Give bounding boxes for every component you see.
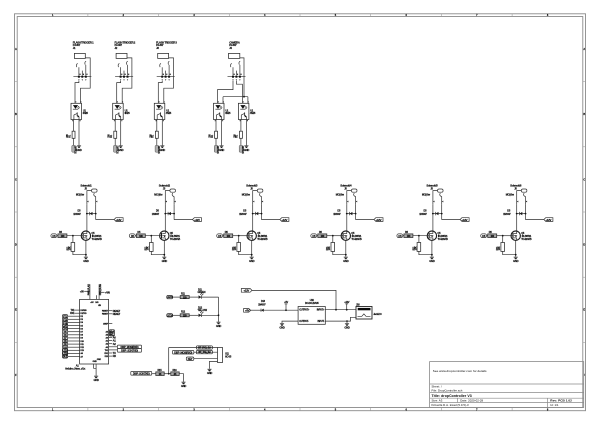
svg-text:INPUT+: INPUT+ [317, 308, 325, 312]
svg-text:1N4007: 1N4007 [258, 302, 266, 306]
svg-text:Rev: PCB 1.02: Rev: PCB 1.02 [550, 398, 572, 402]
svg-text:DISP_SCK(TXD): DISP_SCK(TXD) [121, 349, 138, 353]
svg-text:HC-05: HC-05 [225, 355, 232, 359]
svg-text:D0/RX0: D0/RX0 [80, 310, 87, 312]
svg-text:Date: 2020-02-28: Date: 2020-02-28 [460, 399, 483, 403]
svg-text:INPUT-: INPUT- [318, 319, 325, 323]
svg-text:Solenoid4: Solenoid4 [340, 183, 352, 187]
svg-text:BT_TX1_5.0: BT_TX1_5.0 [198, 350, 211, 354]
svg-text:Solenoid6: Solenoid6 [510, 183, 522, 187]
svg-text:Solenoid3: Solenoid3 [246, 183, 258, 187]
svg-text:+12V: +12V [243, 289, 249, 293]
svg-text:1K: 1K [159, 373, 162, 376]
svg-text:Arduino_Nano_v3.x: Arduino_Nano_v3.x [65, 366, 86, 370]
svg-text:GND: GND [93, 361, 98, 363]
svg-text:See www.dropcontroller.com for: See www.dropcontroller.com for details [433, 369, 487, 373]
svg-text:+5V: +5V [80, 289, 84, 293]
svg-text:RESET: RESET [102, 314, 109, 316]
svg-text:+12V: +12V [344, 300, 349, 304]
svg-text:Title: dropController V3: Title: dropController V3 [432, 394, 472, 398]
svg-text:Size: A3: Size: A3 [432, 399, 443, 403]
svg-text:GND: GND [97, 359, 102, 361]
svg-text:DISP_SCK(TXD): DISP_SCK(TXD) [133, 372, 150, 376]
svg-text:+5V: +5V [245, 309, 250, 313]
svg-text:File: DropController.sch: File: DropController.sch [432, 388, 463, 392]
svg-text:RESET: RESET [102, 311, 109, 313]
svg-text:YELLOW: YELLOW [198, 308, 208, 312]
svg-text:Solenoid5: Solenoid5 [426, 183, 438, 187]
svg-text:RESET: RESET [113, 312, 121, 316]
svg-text:Jack-DC: Jack-DC [373, 312, 382, 316]
svg-text:PWR_FLAG: PWR_FLAG [88, 284, 91, 295]
svg-text:PWR_FLAG: PWR_FLAG [99, 284, 102, 295]
svg-text:DC-DCLBA05: DC-DCLBA05 [305, 301, 319, 305]
svg-text:+5V: +5V [284, 300, 288, 304]
svg-text:DISP_MOSI(RXD): DISP_MOSI(RXD) [174, 350, 192, 354]
svg-text:BT_RX1_5.0: BT_RX1_5.0 [198, 346, 211, 350]
svg-text:LED2: LED2 [167, 313, 173, 317]
svg-text:Id: 1/1: Id: 1/1 [550, 403, 559, 407]
svg-text:Solenoid2: Solenoid2 [159, 183, 171, 187]
svg-text:+VIN: +VIN [105, 290, 110, 294]
svg-text:BUZ: BUZ [63, 355, 68, 359]
svg-text:GREEN: GREEN [198, 290, 206, 294]
svg-text:2K: 2K [174, 373, 177, 376]
svg-text:OUTPUT-: OUTPUT- [299, 319, 309, 323]
svg-text:KiCad E.D.A. kicad (5.0.5)-3: KiCad E.D.A. kicad (5.0.5)-3 [432, 403, 469, 407]
svg-text:KEY: KEY [188, 357, 193, 361]
svg-text:LED1: LED1 [167, 295, 173, 299]
svg-text:OUTPUT+: OUTPUT+ [299, 308, 310, 312]
svg-text:Solenoid1: Solenoid1 [80, 183, 92, 187]
